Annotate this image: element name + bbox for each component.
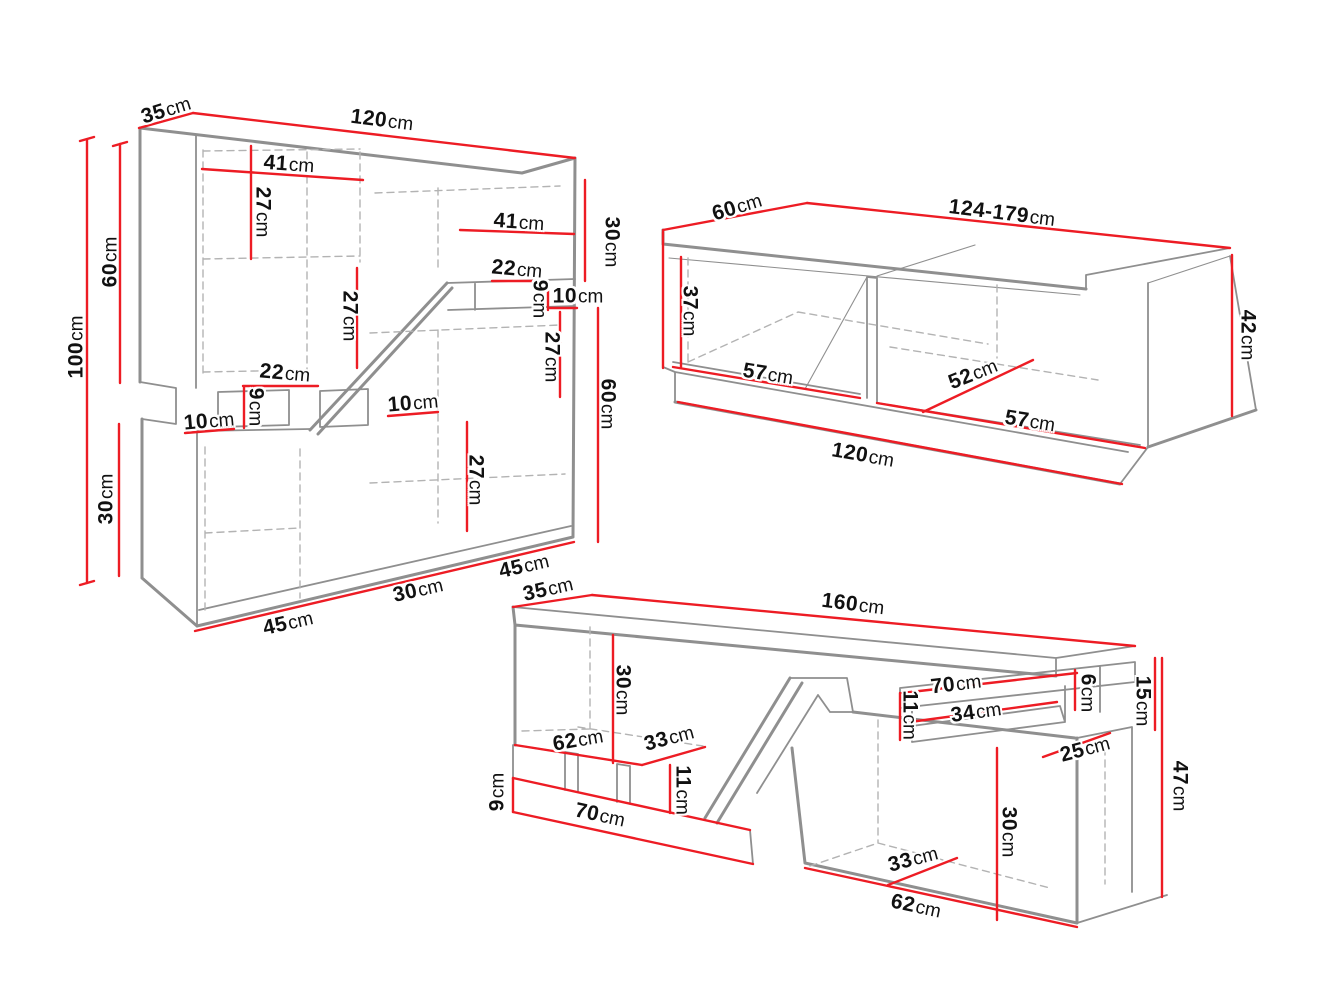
wall-unit-drawing — [140, 128, 575, 626]
coffee-table-drawing — [663, 230, 1256, 484]
dimension-line-tv-stand — [805, 868, 1077, 927]
coffee-table-structure — [663, 248, 1256, 484]
dimension-line-coffee-table — [678, 402, 1122, 484]
dimension-lines — [80, 113, 1232, 927]
tv-stand-hidden-lines — [522, 627, 1105, 888]
dimension-line-coffee-table — [673, 367, 860, 398]
dimension-line-wall-unit — [195, 542, 574, 631]
furniture-dimension-diagram: 35cm120cm100cm60cm30cm41cm27cm41cm30cm22… — [0, 0, 1331, 998]
dimension-line-tv-stand — [513, 812, 753, 864]
dimension-line-coffee-table — [663, 203, 807, 230]
dimension-line-tv-stand — [902, 673, 1077, 693]
dimension-line-wall-unit — [202, 169, 363, 180]
dimension-line-wall-unit — [139, 113, 193, 128]
tv-stand-outline — [513, 607, 1077, 923]
coffee-table-inner-edges — [669, 245, 1230, 389]
dimension-line-tv-stand — [513, 595, 592, 607]
dimension-line-wall-unit — [388, 412, 438, 416]
dimension-line-coffee-table — [807, 203, 1230, 248]
dimension-line-wall-unit — [460, 230, 574, 234]
coffee-table-hidden-lines — [688, 258, 1098, 380]
wall-unit-outline — [140, 128, 575, 626]
wall-unit-hidden-lines — [203, 149, 565, 612]
coffee-table-outline — [663, 230, 1256, 484]
dimension-line-tv-stand — [642, 747, 705, 765]
dimension-line-tv-stand — [888, 858, 957, 885]
diagram-canvas — [0, 0, 1331, 998]
dimension-line-tv-stand — [592, 595, 1135, 646]
dimension-line-coffee-table — [923, 360, 1033, 412]
dimension-line-coffee-table — [877, 403, 1145, 448]
